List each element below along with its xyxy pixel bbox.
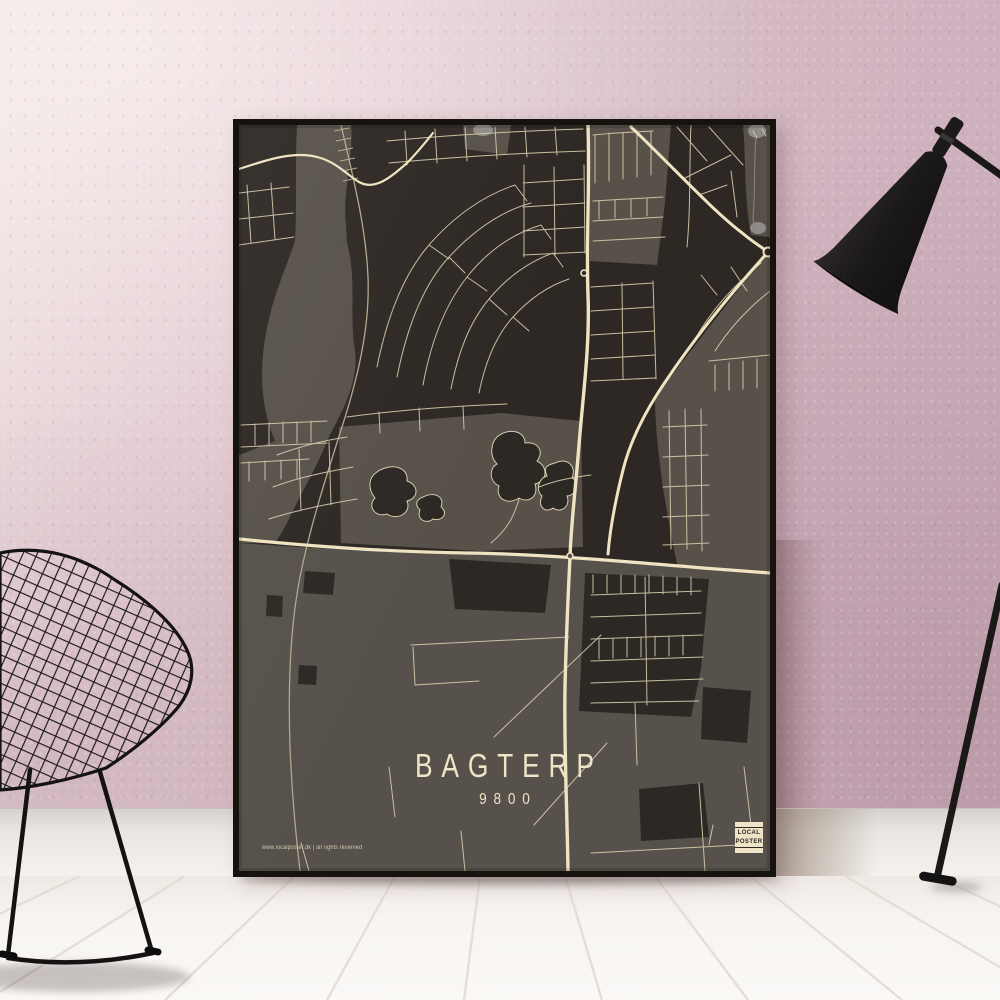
logo-line1: LOCAL (735, 829, 762, 837)
poster-footer: www.localposter.dk | all rights reserved (262, 845, 362, 851)
wire-chair (0, 540, 205, 1000)
floor-lamp (805, 100, 1000, 900)
poster-title: BAGTERP (287, 747, 721, 785)
localposter-logo: LOCAL POSTER (735, 822, 763, 853)
lamp-shade (813, 127, 982, 314)
lamp-pole (937, 585, 1000, 878)
room-scene: BAGTERP 9800 www.localposter.dk | all ri… (0, 0, 1000, 1000)
map-poster: BAGTERP 9800 www.localposter.dk | all ri… (233, 119, 776, 877)
logo-line2: POSTER (735, 838, 762, 846)
poster-postal-code: 9800 (274, 791, 736, 809)
